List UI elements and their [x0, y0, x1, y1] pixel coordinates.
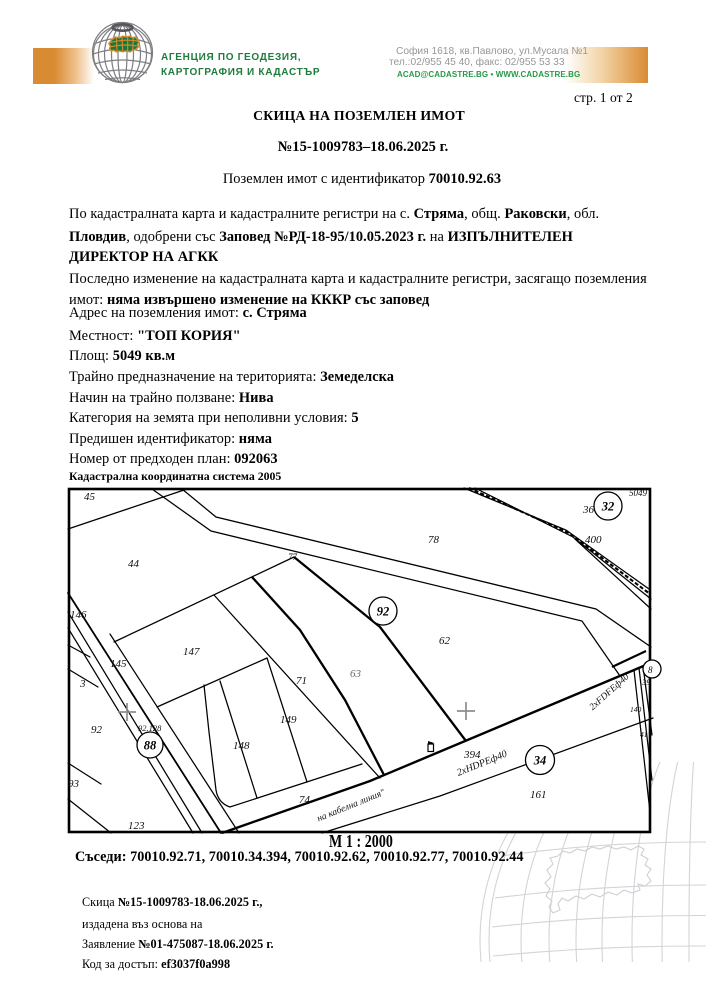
svg-text:71: 71	[296, 675, 307, 687]
svg-text:93: 93	[68, 778, 80, 790]
svg-text:63: 63	[350, 668, 362, 680]
svg-text:44: 44	[128, 558, 140, 570]
svg-text:161: 161	[530, 789, 547, 801]
svg-text:32: 32	[601, 500, 615, 514]
svg-text:400: 400	[585, 534, 602, 546]
svg-text:78: 78	[428, 534, 440, 546]
svg-text:62: 62	[439, 635, 451, 647]
svg-text:123: 123	[128, 820, 145, 832]
svg-text:92: 92	[377, 605, 390, 619]
svg-text:92: 92	[91, 724, 103, 736]
svg-text:5049: 5049	[629, 488, 648, 498]
svg-text:149: 149	[280, 714, 297, 726]
svg-text:41: 41	[640, 730, 648, 739]
svg-text:45: 45	[84, 491, 96, 503]
svg-text:140: 140	[630, 705, 642, 714]
svg-text:74: 74	[299, 794, 311, 806]
svg-text:34: 34	[533, 754, 547, 768]
svg-text:36: 36	[582, 504, 595, 516]
svg-text:39: 39	[641, 677, 651, 687]
svg-text:77: 77	[288, 552, 298, 562]
svg-text:8: 8	[648, 665, 653, 675]
svg-text:3: 3	[79, 678, 86, 690]
svg-text:147: 147	[183, 646, 200, 658]
svg-text:92.128: 92.128	[138, 723, 162, 733]
svg-text:88: 88	[144, 739, 157, 753]
svg-text:145: 145	[110, 658, 127, 670]
svg-text:148: 148	[233, 740, 250, 752]
svg-text:146: 146	[70, 609, 87, 621]
